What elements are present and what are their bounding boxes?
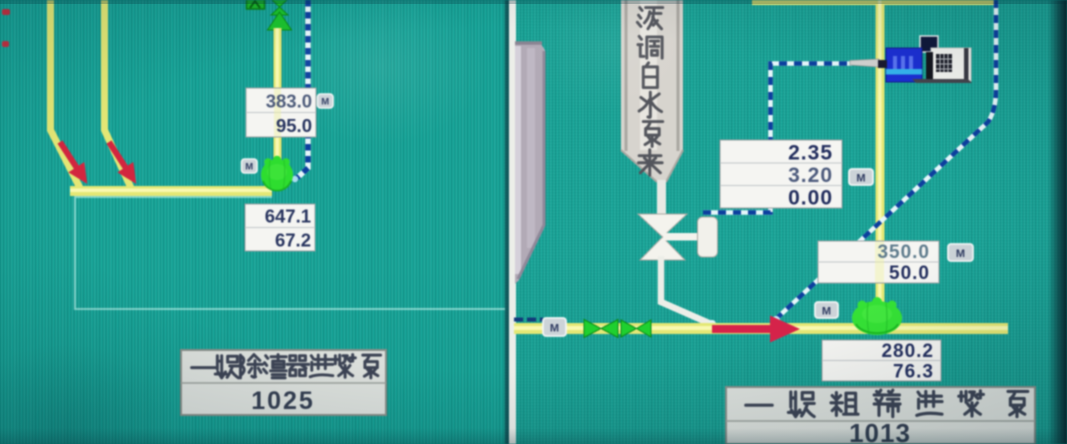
svg-text:0.00: 0.00 (788, 187, 833, 210)
svg-text:1025: 1025 (251, 387, 315, 415)
svg-text:M: M (822, 306, 831, 318)
svg-text:M: M (956, 248, 965, 260)
svg-text:67.2: 67.2 (275, 230, 311, 251)
svg-text:350.0: 350.0 (877, 242, 930, 263)
svg-text:50.0: 50.0 (889, 263, 930, 284)
svg-text:M: M (550, 323, 559, 335)
svg-text:280.2: 280.2 (881, 341, 934, 362)
svg-text:2.35: 2.35 (788, 142, 833, 165)
svg-text:3.20: 3.20 (788, 164, 833, 187)
svg-text:76.3: 76.3 (893, 362, 934, 383)
svg-text:647.1: 647.1 (265, 206, 311, 227)
svg-text:M: M (856, 173, 865, 185)
